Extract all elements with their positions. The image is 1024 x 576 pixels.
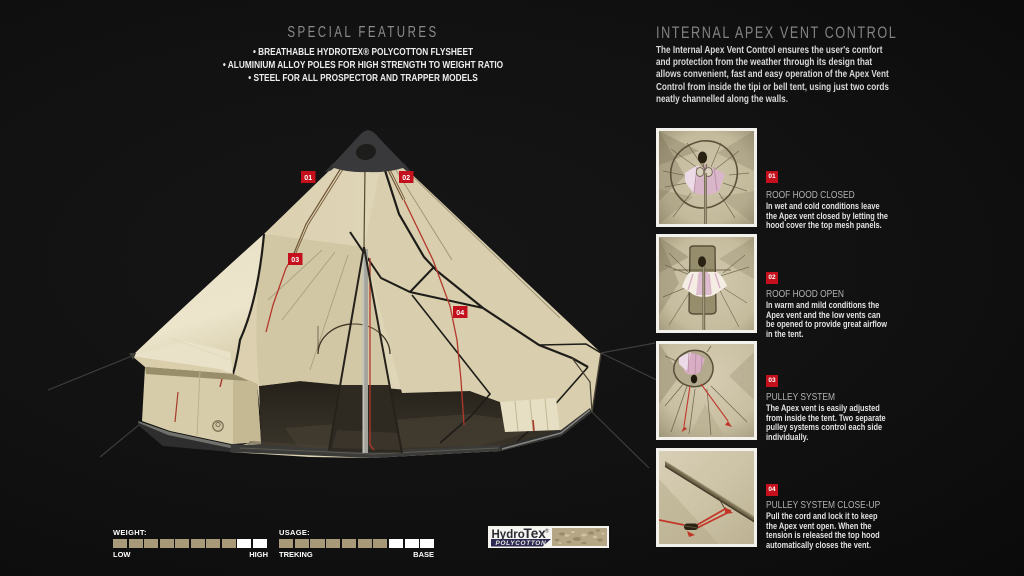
svg-text:04: 04 — [456, 310, 464, 317]
svg-text:03: 03 — [291, 257, 299, 264]
svg-text:®: ® — [545, 528, 549, 535]
svg-text:Tex: Tex — [524, 526, 547, 541]
svg-text:01: 01 — [304, 175, 312, 182]
svg-text:02: 02 — [402, 175, 410, 182]
svg-text:POLYCOTTON: POLYCOTTON — [496, 540, 547, 547]
